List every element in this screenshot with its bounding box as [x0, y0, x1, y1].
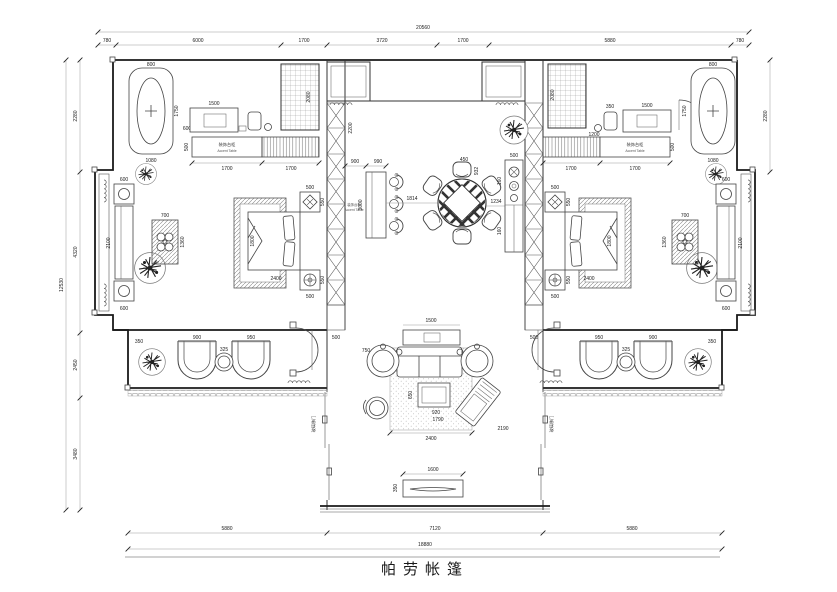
lamp-icon [304, 274, 316, 286]
dim-label: 1750 [174, 105, 180, 116]
floor-plan-drawing: 20560 780 6000 1700 3720 1700 5880 780 1… [0, 0, 837, 592]
dim-label: 350 [393, 484, 399, 493]
dim-label: 3720 [376, 38, 387, 44]
sitting-area-left: 350 900 950 325 [128, 335, 327, 396]
dim-label: 5880 [626, 526, 637, 532]
shower-left: 2080 [281, 64, 319, 130]
cabinet-label-en: Accent Table [217, 149, 236, 153]
game-table-left: 700 1360 [152, 213, 186, 264]
dim-label: 600 [120, 177, 129, 183]
dim-label: 5880 [604, 38, 615, 44]
curtain-coil [496, 103, 518, 105]
dim-label: 1800 [607, 235, 613, 246]
dim-label: 700 [681, 213, 690, 219]
dim-label: 950 [247, 335, 256, 341]
dim-label: 2190 [497, 426, 508, 432]
dim-label: 2450 [73, 359, 79, 370]
dim-label: 350 [708, 339, 717, 345]
living-area: 1500 900 750 650 920 1790 2190 2400 [362, 318, 509, 442]
dim-label: 1700 [285, 166, 296, 172]
curtain-coil [104, 284, 106, 306]
deck-strip [543, 390, 722, 396]
dim-label: 350 [135, 339, 144, 345]
dim-label: 7120 [429, 526, 440, 532]
sofa [397, 347, 462, 377]
dim-label: 1700 [457, 38, 468, 44]
tub-chair [634, 341, 672, 379]
dim-label: 500 [306, 185, 315, 191]
dim-label: 325 [220, 347, 229, 353]
bay-window-left: 600 2100 600 [104, 177, 134, 312]
dim-label: 350 [606, 104, 615, 110]
plant-icon [685, 349, 712, 376]
dim-label: 600 [120, 306, 129, 312]
dim-label: 1700 [298, 38, 309, 44]
dim-label: 1360 [180, 236, 186, 247]
drawing-title: 帕劳帐篷 [381, 560, 469, 578]
dim-label: 20560 [416, 25, 430, 31]
lattice-screen-left: 500 2200 [327, 103, 354, 341]
bed-left: 1800 2400 [234, 198, 300, 288]
title-block: 帕劳帐篷 [125, 557, 720, 578]
bench: 1600 350 [393, 467, 465, 497]
curtain-coil [288, 381, 310, 383]
dim-label: 1080 [707, 158, 718, 164]
bed-right: 1800 2400 [565, 198, 631, 288]
dim-label: 3000 [358, 199, 364, 210]
dim-label: 2200 [348, 122, 354, 133]
console-left: 装饰台柜 Accent Table 900 990 3000 1814 [343, 159, 438, 238]
dim-label: 1800 [250, 235, 256, 246]
dimension-bottom: 5880 7120 5880 18880 [126, 526, 725, 551]
dimension-top: 20560 780 6000 1700 3720 1700 5880 780 [96, 25, 752, 47]
dim-label: 5880 [221, 526, 232, 532]
stool [390, 195, 404, 212]
dim-label: 160 [497, 177, 503, 186]
dim-label: 2100 [738, 237, 744, 248]
dim-label: 550 [320, 198, 326, 207]
lamp-icon [549, 274, 561, 286]
dim-label: 6000 [192, 38, 203, 44]
nightstand-left-top: 500 550 [300, 185, 326, 212]
floor-plan-sheet: 20560 780 6000 1700 3720 1700 5880 780 1… [0, 0, 837, 592]
curtain-coil [748, 284, 750, 306]
dimension-right: 2280 [763, 58, 772, 175]
nightstand-right-bottom: 500 550 [545, 270, 572, 300]
dim-label: 1080 [145, 158, 156, 164]
dim-label: 1234 [490, 199, 501, 205]
dim-label: 2400 [583, 276, 594, 282]
dim-label: 2080 [550, 89, 556, 100]
dim-label: 325 [622, 347, 631, 353]
dim-label: 2100 [106, 237, 112, 248]
plant-icon [500, 116, 528, 144]
deck-strip [128, 390, 327, 396]
bay-window-right: 600 2100 600 [716, 177, 750, 312]
dim-label: 500 [551, 294, 560, 300]
dim-label: 2080 [306, 91, 312, 102]
dim-label: 800 [147, 62, 156, 68]
cabinet-label-zh: 装饰台柜 [219, 141, 236, 148]
dim-label: 750 [362, 348, 371, 354]
dim-label: 1700 [221, 166, 232, 172]
dim-label: 550 [320, 276, 326, 285]
dim-label: 1750 [682, 105, 688, 116]
bathtub-right: 800 1750 1080 [682, 62, 735, 164]
dim-label: 12530 [59, 278, 65, 292]
dim-label: 920 [432, 410, 441, 416]
dim-label: 950 [595, 335, 604, 341]
dim-label: 18880 [418, 542, 432, 548]
side-table [364, 397, 389, 419]
dim-label: 550 [566, 276, 572, 285]
dim-label: 1500 [425, 318, 436, 324]
dim-label: 2280 [73, 110, 79, 121]
dim-label: 1500 [641, 103, 652, 109]
dim-label: 900 [649, 335, 658, 341]
cabinet-label-en: Accent Table [625, 149, 644, 153]
dim-label: 900 [193, 335, 202, 341]
dim-label: 900 [351, 159, 360, 165]
door-label: 玻璃移门 [310, 416, 317, 433]
game-table-right: 700 1360 [662, 213, 698, 264]
dim-label: 780 [103, 38, 112, 44]
dim-label: 500 [306, 294, 315, 300]
dim-label: 1500 [208, 101, 219, 107]
dim-label: 780 [736, 38, 745, 44]
door-label: 玻璃移门 [548, 416, 555, 433]
stool [390, 173, 404, 190]
sitting-area-right: 350 950 900 325 [540, 335, 722, 396]
dim-label: 4320 [73, 246, 79, 257]
dim-label: 1700 [629, 166, 640, 172]
dim-label: 600 [722, 306, 731, 312]
dim-label: 500 [551, 185, 560, 191]
cabinet-row-right: 装饰台柜 Accent Table 500 1700 1700 [541, 137, 676, 172]
dim-label: 932 [474, 167, 480, 176]
dim-label: 2280 [763, 110, 769, 121]
dim-label: 450 [460, 157, 469, 163]
dim-label: 500 [670, 143, 676, 152]
tub-chair [178, 341, 216, 379]
dresser-right: 350 1500 [595, 103, 672, 132]
dim-label: 600 [722, 177, 731, 183]
dim-label: 1600 [427, 467, 438, 473]
plant-icon [136, 164, 157, 185]
dim-label: 500 [332, 335, 341, 341]
tub-chair [580, 341, 618, 379]
stool [390, 217, 404, 234]
dining-chair [453, 162, 471, 177]
dim-label: 1360 [662, 236, 668, 247]
curtain-coil [104, 180, 106, 202]
tub-chair [232, 341, 270, 379]
nightstand-right-top: 500 550 [545, 185, 572, 212]
dim-label: 1790 [432, 417, 443, 423]
shower-right: 2080 1200 [548, 64, 600, 138]
dim-label: 550 [566, 198, 572, 207]
dim-label: 160 [497, 227, 503, 236]
cabinet-row-left: 装饰台柜 Accent Table 500 1700 1700 [184, 137, 321, 172]
curtain-coil [330, 103, 352, 105]
dimension-left: 12530 2280 4320 2450 3480 [59, 58, 82, 513]
cabinet-label-zh: 装饰台柜 [627, 141, 644, 148]
plant-icon [139, 349, 166, 376]
dresser-left: 1500 [190, 101, 272, 132]
dim-label: 700 [161, 213, 170, 219]
dim-label: 1700 [565, 166, 576, 172]
lattice-screen-right: 500 [525, 103, 543, 341]
dim-label: 2400 [270, 276, 281, 282]
dim-label: 800 [709, 62, 718, 68]
dining-set: 450 932 1234 [418, 157, 506, 248]
curtain-coil [748, 180, 750, 202]
dim-label: 650 [408, 391, 414, 400]
dim-label: 2400 [425, 436, 436, 442]
dim-label: 1814 [406, 196, 417, 202]
coffee-table [418, 383, 450, 407]
dim-label: 990 [374, 159, 383, 165]
dim-label: 500 [510, 153, 519, 159]
nightstand-left-bottom: 500 550 [300, 270, 326, 300]
bathtub-left: 800 1750 1080 600 [129, 62, 191, 164]
dim-label: 500 [184, 143, 190, 152]
dim-label: 3480 [73, 448, 79, 459]
dining-chair [453, 229, 471, 244]
